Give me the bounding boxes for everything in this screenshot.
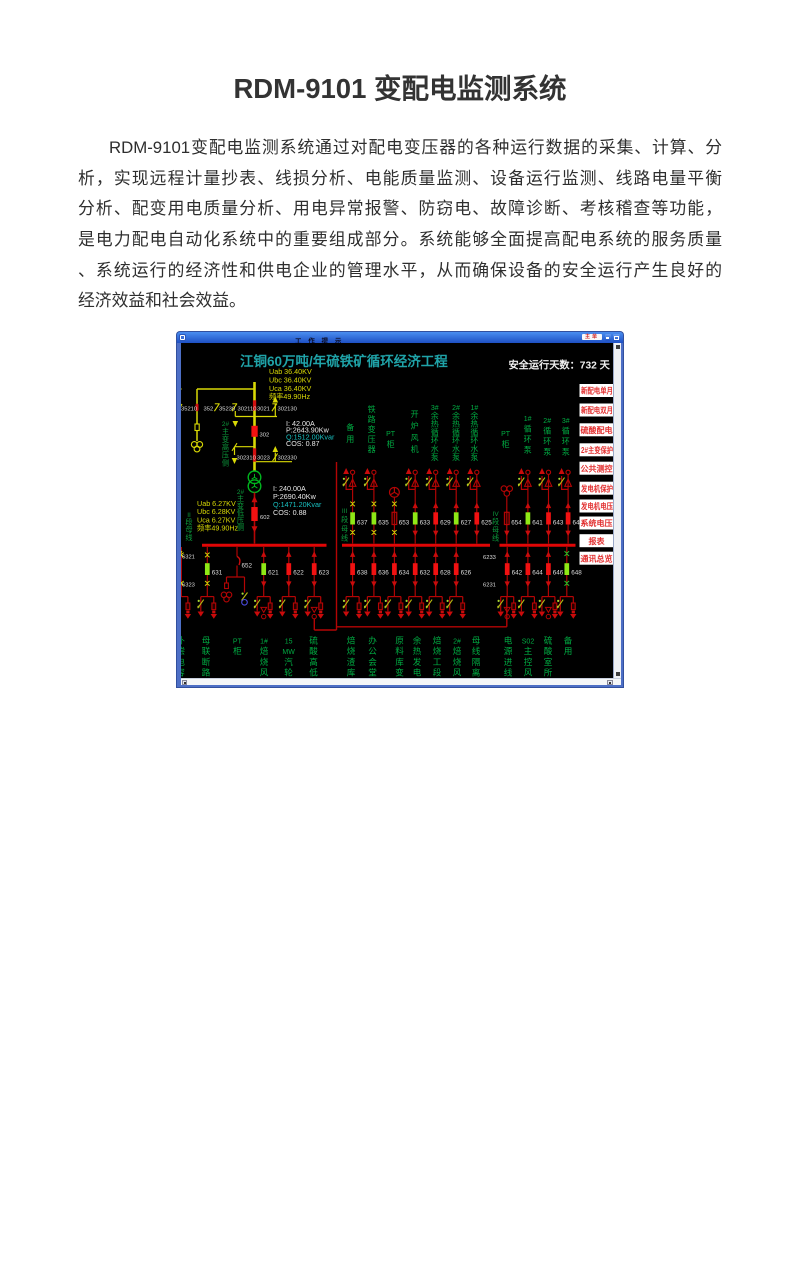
svg-text:堂: 堂 bbox=[368, 667, 377, 678]
svg-text:PT: PT bbox=[233, 639, 243, 646]
svg-text:644: 644 bbox=[532, 569, 543, 576]
svg-text:633: 633 bbox=[420, 519, 431, 526]
svg-text:风: 风 bbox=[453, 668, 462, 678]
svg-text:汽: 汽 bbox=[284, 656, 293, 667]
svg-text:路: 路 bbox=[368, 414, 376, 424]
svg-text:酸: 酸 bbox=[309, 646, 318, 656]
svg-text:629: 629 bbox=[440, 519, 451, 526]
svg-text:变: 变 bbox=[368, 424, 376, 434]
svg-text:焙: 焙 bbox=[347, 635, 356, 646]
svg-text:烧: 烧 bbox=[433, 646, 442, 656]
svg-text:硫: 硫 bbox=[544, 635, 553, 646]
svg-text:室: 室 bbox=[544, 656, 553, 667]
svg-text:电: 电 bbox=[504, 635, 513, 646]
svg-text:容: 容 bbox=[181, 667, 185, 678]
svg-text:线: 线 bbox=[504, 667, 513, 678]
svg-text:3#: 3# bbox=[562, 418, 570, 425]
svg-text:线: 线 bbox=[492, 534, 499, 543]
svg-text:环: 环 bbox=[562, 437, 570, 446]
svg-text:料: 料 bbox=[395, 645, 404, 656]
svg-text:变: 变 bbox=[395, 667, 404, 678]
svg-text:15: 15 bbox=[285, 639, 293, 646]
svg-text:循: 循 bbox=[543, 426, 551, 436]
svg-text:636: 636 bbox=[378, 569, 389, 576]
svg-text:302330: 302330 bbox=[278, 455, 297, 461]
svg-text:母: 母 bbox=[341, 524, 348, 533]
svg-text:烧: 烧 bbox=[347, 646, 356, 656]
svg-text:PT: PT bbox=[386, 431, 396, 438]
svg-text:发电机电压: 发电机电压 bbox=[580, 501, 613, 511]
svg-text:偿: 偿 bbox=[181, 645, 185, 656]
svg-text:硫酸配电: 硫酸配电 bbox=[581, 425, 613, 435]
svg-text:6231: 6231 bbox=[483, 583, 496, 589]
svg-text:焙: 焙 bbox=[453, 645, 462, 656]
svg-text:硫: 硫 bbox=[309, 635, 318, 646]
svg-text:发电机保护: 发电机保护 bbox=[580, 483, 613, 493]
svg-text:643: 643 bbox=[553, 519, 564, 526]
svg-text:S02: S02 bbox=[522, 639, 535, 646]
svg-text:焙: 焙 bbox=[433, 635, 442, 646]
svg-text:源: 源 bbox=[504, 646, 513, 656]
svg-text:635: 635 bbox=[378, 519, 389, 526]
svg-text:1#: 1# bbox=[524, 416, 532, 423]
svg-text:侧: 侧 bbox=[237, 523, 244, 532]
svg-text:会: 会 bbox=[368, 656, 377, 667]
svg-text:642: 642 bbox=[512, 569, 523, 576]
svg-text:641: 641 bbox=[532, 519, 543, 526]
svg-text:632: 632 bbox=[420, 569, 431, 576]
svg-text:652: 652 bbox=[242, 563, 253, 570]
svg-text:主: 主 bbox=[524, 645, 533, 656]
svg-text:2#: 2# bbox=[453, 639, 461, 646]
svg-text:352: 352 bbox=[204, 407, 214, 413]
svg-text:报表: 报表 bbox=[589, 536, 606, 546]
svg-text:泵: 泵 bbox=[470, 453, 478, 462]
svg-text:控: 控 bbox=[524, 656, 533, 667]
svg-text:烧: 烧 bbox=[453, 657, 462, 667]
svg-text:开: 开 bbox=[411, 410, 419, 419]
svg-text:焙: 焙 bbox=[260, 645, 269, 656]
svg-text:联: 联 bbox=[202, 646, 211, 656]
svg-text:备: 备 bbox=[346, 422, 354, 432]
svg-text:风: 风 bbox=[411, 433, 419, 442]
svg-text:断: 断 bbox=[202, 656, 211, 667]
svg-text:泵: 泵 bbox=[452, 453, 460, 462]
svg-text:线: 线 bbox=[185, 533, 192, 542]
svg-text:35230: 35230 bbox=[219, 407, 235, 413]
svg-text:备: 备 bbox=[564, 635, 573, 646]
svg-text:线: 线 bbox=[472, 645, 481, 656]
svg-text:653: 653 bbox=[399, 519, 410, 526]
svg-text:办: 办 bbox=[368, 635, 377, 646]
svg-text:6233: 6233 bbox=[483, 555, 496, 561]
svg-text:302310: 302310 bbox=[237, 455, 256, 461]
svg-text:所: 所 bbox=[544, 668, 553, 678]
svg-text:PT: PT bbox=[501, 431, 511, 438]
svg-text:隔: 隔 bbox=[472, 657, 481, 667]
svg-text:烧: 烧 bbox=[260, 657, 269, 667]
svg-text:机: 机 bbox=[411, 444, 419, 454]
svg-text:泵: 泵 bbox=[543, 448, 551, 457]
svg-text:公: 公 bbox=[368, 646, 377, 656]
svg-text:余: 余 bbox=[413, 635, 422, 646]
svg-text:627: 627 bbox=[461, 519, 472, 526]
svg-text:3021: 3021 bbox=[257, 407, 270, 413]
svg-text:线: 线 bbox=[341, 534, 348, 543]
svg-text:625: 625 bbox=[481, 519, 492, 526]
svg-text:工: 工 bbox=[433, 657, 442, 667]
svg-text:炉: 炉 bbox=[411, 421, 419, 431]
svg-text:泵: 泵 bbox=[524, 446, 532, 455]
svg-text:风: 风 bbox=[260, 668, 269, 678]
svg-text:高: 高 bbox=[309, 656, 318, 667]
svg-text:母: 母 bbox=[202, 636, 211, 646]
svg-text:302130: 302130 bbox=[278, 407, 297, 413]
svg-text:段: 段 bbox=[433, 667, 442, 678]
svg-text:新配电单月: 新配电单月 bbox=[581, 386, 613, 396]
svg-text:频率49.90Hz: 频率49.90Hz bbox=[197, 524, 239, 533]
svg-text:3023: 3023 bbox=[257, 455, 270, 461]
svg-text:泵: 泵 bbox=[431, 453, 439, 462]
svg-text:用: 用 bbox=[564, 646, 573, 656]
svg-text:路: 路 bbox=[202, 667, 211, 678]
svg-text:风: 风 bbox=[524, 668, 533, 678]
svg-text:系统电压: 系统电压 bbox=[581, 518, 613, 528]
svg-text:母: 母 bbox=[472, 636, 481, 646]
svg-text:302110: 302110 bbox=[238, 407, 257, 413]
svg-text:III: III bbox=[342, 508, 348, 515]
svg-text:用: 用 bbox=[346, 435, 354, 444]
svg-text:通讯总览: 通讯总览 bbox=[581, 553, 613, 563]
svg-text:6323: 6323 bbox=[182, 583, 195, 589]
svg-text:侧: 侧 bbox=[222, 459, 229, 468]
svg-text:MW: MW bbox=[282, 649, 295, 656]
svg-text:新配电双月: 新配电双月 bbox=[581, 405, 613, 415]
svg-text:进: 进 bbox=[504, 657, 513, 667]
svg-text:638: 638 bbox=[357, 569, 368, 576]
svg-text:补: 补 bbox=[181, 635, 185, 646]
svg-text:柜: 柜 bbox=[387, 439, 395, 449]
svg-text:段: 段 bbox=[341, 515, 348, 524]
svg-text:柜: 柜 bbox=[233, 645, 242, 656]
svg-text:发: 发 bbox=[413, 656, 422, 667]
svg-text:1#: 1# bbox=[260, 639, 268, 646]
svg-text:循: 循 bbox=[562, 426, 570, 436]
svg-text:634: 634 bbox=[399, 569, 410, 576]
svg-text:酸: 酸 bbox=[544, 646, 553, 656]
svg-text:低: 低 bbox=[309, 667, 318, 678]
svg-text:轮: 轮 bbox=[284, 667, 293, 678]
svg-text:柜: 柜 bbox=[502, 439, 510, 449]
svg-text:渣: 渣 bbox=[347, 656, 356, 667]
svg-text:泵: 泵 bbox=[562, 448, 570, 457]
svg-text:654: 654 bbox=[511, 519, 522, 526]
svg-text:铁: 铁 bbox=[368, 404, 376, 414]
svg-text:热: 热 bbox=[413, 645, 422, 656]
svg-text:电: 电 bbox=[181, 656, 185, 667]
svg-text:电: 电 bbox=[413, 667, 422, 678]
svg-text:库: 库 bbox=[395, 656, 404, 667]
svg-text:637: 637 bbox=[357, 519, 368, 526]
svg-text:原: 原 bbox=[395, 636, 404, 646]
svg-text:库: 库 bbox=[347, 667, 356, 678]
svg-text:35210: 35210 bbox=[181, 407, 197, 413]
svg-text:631: 631 bbox=[212, 569, 223, 576]
svg-text:器: 器 bbox=[368, 445, 376, 454]
svg-text:2#主变保护: 2#主变保护 bbox=[581, 445, 613, 455]
svg-text:628: 628 bbox=[440, 569, 451, 576]
svg-text:2#: 2# bbox=[543, 418, 551, 425]
svg-text:公共测控: 公共测控 bbox=[581, 463, 613, 473]
svg-text:COS: 0.87: COS: 0.87 bbox=[286, 439, 320, 448]
svg-text:623: 623 bbox=[319, 569, 330, 576]
svg-text:621: 621 bbox=[268, 569, 279, 576]
svg-text:622: 622 bbox=[293, 569, 304, 576]
svg-text:COS: 0.88: COS: 0.88 bbox=[273, 508, 307, 517]
svg-text:环: 环 bbox=[543, 437, 551, 446]
svg-text:安全运行天数：732 天: 安全运行天数：732 天 bbox=[509, 359, 611, 372]
svg-text:648: 648 bbox=[571, 569, 582, 576]
svg-text:离: 离 bbox=[472, 667, 481, 678]
svg-text:602: 602 bbox=[260, 515, 270, 521]
svg-text:302: 302 bbox=[260, 433, 270, 439]
svg-text:646: 646 bbox=[553, 569, 564, 576]
svg-text:6321: 6321 bbox=[182, 555, 195, 561]
svg-text:压: 压 bbox=[368, 435, 376, 444]
svg-text:循: 循 bbox=[524, 424, 532, 434]
svg-text:环: 环 bbox=[524, 435, 532, 444]
svg-text:626: 626 bbox=[461, 569, 472, 576]
